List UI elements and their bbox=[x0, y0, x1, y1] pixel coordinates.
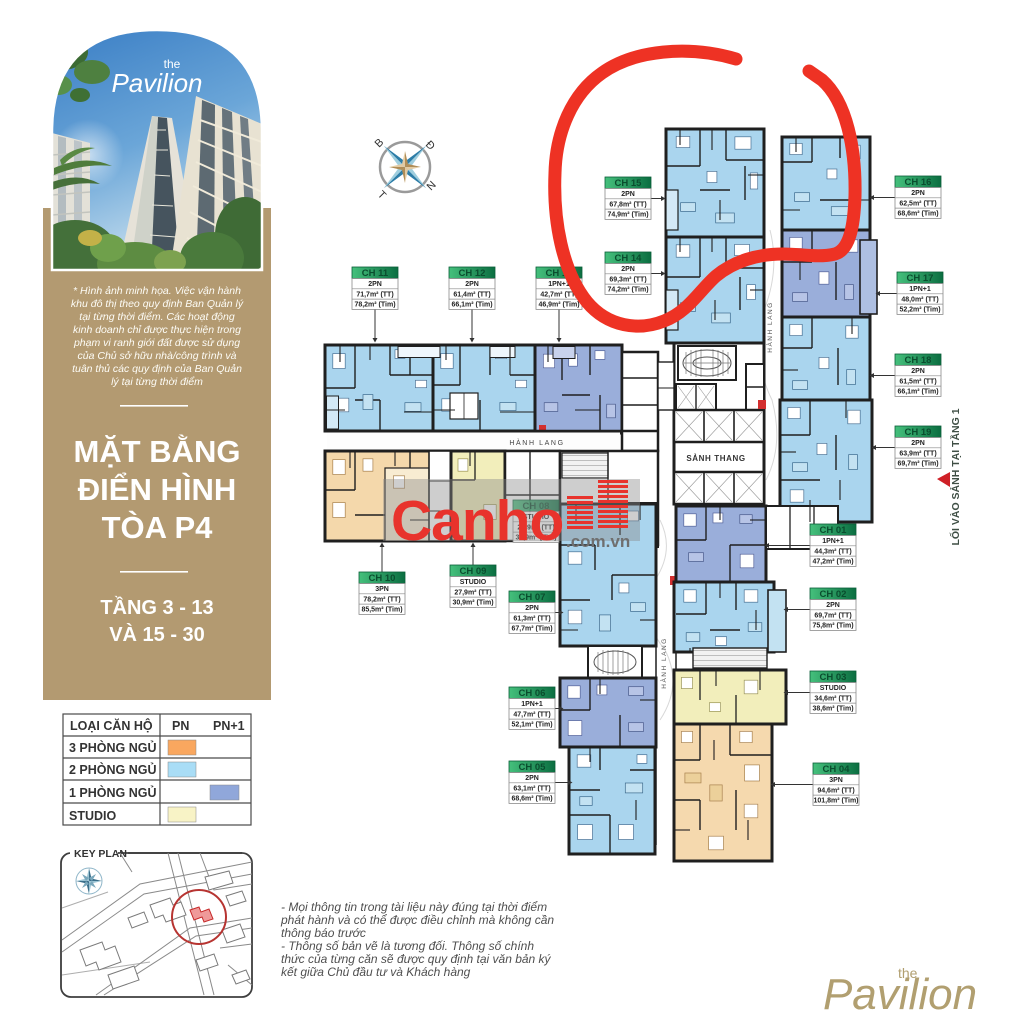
svg-text:phạm vi ranh giới đất được sử: phạm vi ranh giới đất được sử dụng bbox=[73, 337, 240, 349]
svg-text:2PN: 2PN bbox=[911, 440, 925, 447]
svg-text:2PN: 2PN bbox=[525, 605, 539, 612]
svg-text:CH 09: CH 09 bbox=[460, 566, 487, 577]
svg-text:LỐI VÀO SẢNH TẠI TẦNG 1: LỐI VÀO SẢNH TẠI TẦNG 1 bbox=[948, 408, 962, 545]
svg-text:67,8m² (TT): 67,8m² (TT) bbox=[609, 201, 646, 208]
svg-text:CH 16: CH 16 bbox=[905, 177, 932, 188]
svg-text:69,7m² (TT): 69,7m² (TT) bbox=[814, 612, 851, 619]
svg-text:71,7m² (TT): 71,7m² (TT) bbox=[356, 291, 393, 298]
svg-text:2PN: 2PN bbox=[621, 266, 635, 273]
svg-text:78,2m² (TT): 78,2m² (TT) bbox=[363, 596, 400, 603]
svg-text:HÀNH LANG: HÀNH LANG bbox=[659, 637, 668, 688]
svg-text:CH 06: CH 06 bbox=[519, 688, 546, 699]
svg-text:VÀ 15 - 30: VÀ 15 - 30 bbox=[109, 623, 205, 646]
svg-text:CH 12: CH 12 bbox=[459, 268, 486, 279]
svg-text:của Chủ sở hữu nhà/công trình: của Chủ sở hữu nhà/công trình và bbox=[78, 350, 237, 362]
svg-text:47,2m² (Tim): 47,2m² (Tim) bbox=[812, 559, 853, 566]
svg-text:CH 04: CH 04 bbox=[823, 764, 851, 775]
svg-text:74,9m² (Tim): 74,9m² (Tim) bbox=[607, 212, 648, 219]
svg-text:69,7m² (Tim): 69,7m² (Tim) bbox=[897, 461, 938, 468]
svg-text:30,9m² (Tim): 30,9m² (Tim) bbox=[452, 600, 493, 607]
svg-text:Pavilion: Pavilion bbox=[823, 970, 977, 1019]
svg-text:CH 05: CH 05 bbox=[519, 762, 547, 773]
svg-text:74,2m² (Tim): 74,2m² (Tim) bbox=[607, 287, 648, 294]
svg-text:61,4m² (TT): 61,4m² (TT) bbox=[453, 291, 490, 298]
svg-text:3PN: 3PN bbox=[829, 777, 843, 784]
svg-text:2PN: 2PN bbox=[465, 281, 479, 288]
svg-text:tuân thủ các quy định của Ban: tuân thủ các quy định của Ban Quản bbox=[72, 363, 242, 375]
svg-text:42,7m² (TT): 42,7m² (TT) bbox=[540, 291, 577, 298]
svg-text:2 PHÒNG NGỦ: 2 PHÒNG NGỦ bbox=[69, 762, 157, 777]
svg-text:CH 11: CH 11 bbox=[362, 268, 389, 279]
svg-text:MẶT BẰNG: MẶT BẰNG bbox=[73, 434, 240, 469]
svg-text:3PN: 3PN bbox=[375, 586, 389, 593]
svg-text:66,1m² (Tim): 66,1m² (Tim) bbox=[451, 302, 492, 309]
svg-text:2PN: 2PN bbox=[525, 775, 539, 782]
svg-text:63,1m² (TT): 63,1m² (TT) bbox=[513, 785, 550, 792]
svg-text:- Mọi thông tin trong tài liệu: - Mọi thông tin trong tài liệu này đúng … bbox=[281, 900, 547, 914]
svg-text:khu đô thị theo quy định Ban Q: khu đô thị theo quy định Ban Quản lý bbox=[71, 298, 244, 310]
svg-text:LOẠI CĂN HỘ: LOẠI CĂN HỘ bbox=[70, 718, 153, 733]
svg-text:phát hành và có thể được điều: phát hành và có thể được điều chỉnh mà k… bbox=[280, 913, 554, 927]
svg-text:75,8m² (Tim): 75,8m² (Tim) bbox=[812, 623, 853, 630]
svg-text:3 PHÒNG NGỦ: 3 PHÒNG NGỦ bbox=[69, 740, 157, 755]
svg-text:CH 18: CH 18 bbox=[905, 355, 932, 366]
svg-text:PN: PN bbox=[172, 719, 189, 733]
svg-text:47,7m² (TT): 47,7m² (TT) bbox=[513, 711, 550, 718]
svg-text:48,0m² (TT): 48,0m² (TT) bbox=[901, 296, 938, 303]
svg-text:CH 10: CH 10 bbox=[369, 573, 396, 584]
svg-text:kết giữa Chủ đầu tư và Khách h: kết giữa Chủ đầu tư và Khách hàng bbox=[281, 965, 471, 979]
svg-text:46,9m² (Tim): 46,9m² (Tim) bbox=[538, 302, 579, 309]
svg-text:ĐIỂN HÌNH: ĐIỂN HÌNH bbox=[78, 472, 236, 507]
svg-text:38,6m² (Tim): 38,6m² (Tim) bbox=[812, 706, 853, 713]
svg-text:thông báo trước: thông báo trước bbox=[281, 926, 366, 940]
svg-text:52,2m² (Tim): 52,2m² (Tim) bbox=[899, 307, 940, 314]
svg-text:52,1m² (Tim): 52,1m² (Tim) bbox=[511, 722, 552, 729]
svg-text:69,3m² (TT): 69,3m² (TT) bbox=[609, 276, 646, 283]
svg-text:thức của từng căn sẽ được quy: thức của từng căn sẽ được quy định tại v… bbox=[281, 952, 552, 966]
svg-text:* Hình ảnh minh họa. Việc vận: * Hình ảnh minh họa. Việc vận hành bbox=[73, 285, 241, 297]
svg-text:44,3m² (TT): 44,3m² (TT) bbox=[814, 548, 851, 555]
svg-text:HÀNH LANG: HÀNH LANG bbox=[765, 301, 774, 352]
svg-text:KEY PLAN: KEY PLAN bbox=[74, 848, 127, 860]
svg-text:.com.vn: .com.vn bbox=[566, 532, 630, 551]
svg-text:CH 03: CH 03 bbox=[820, 672, 847, 683]
svg-text:STUDIO: STUDIO bbox=[820, 685, 847, 692]
svg-text:kinh doanh chỉ được thực hiện: kinh doanh chỉ được thực hiện trong bbox=[73, 324, 241, 336]
svg-text:1PN+1: 1PN+1 bbox=[822, 538, 844, 545]
svg-text:- Thông số bản vẽ là tương đối: - Thông số bản vẽ là tương đối. Thông số… bbox=[281, 939, 534, 953]
svg-text:2PN: 2PN bbox=[368, 281, 382, 288]
svg-text:66,1m² (Tim): 66,1m² (Tim) bbox=[897, 389, 938, 396]
svg-text:1PN+1: 1PN+1 bbox=[521, 701, 543, 708]
svg-text:2PN: 2PN bbox=[826, 602, 840, 609]
svg-text:CH 14: CH 14 bbox=[615, 253, 643, 264]
svg-text:2PN: 2PN bbox=[621, 191, 635, 198]
svg-text:68,6m² (Tim): 68,6m² (Tim) bbox=[897, 211, 938, 218]
svg-text:94,6m² (TT): 94,6m² (TT) bbox=[817, 787, 854, 794]
svg-text:67,7m² (Tim): 67,7m² (Tim) bbox=[511, 626, 552, 633]
svg-text:Canho: Canho bbox=[391, 489, 563, 553]
svg-text:61,5m² (TT): 61,5m² (TT) bbox=[899, 378, 936, 385]
svg-text:CH 15: CH 15 bbox=[615, 178, 643, 189]
svg-text:CH 07: CH 07 bbox=[519, 592, 546, 603]
svg-text:63,9m² (TT): 63,9m² (TT) bbox=[899, 450, 936, 457]
svg-text:2PN: 2PN bbox=[911, 368, 925, 375]
svg-text:tại từng thời điểm. Các hoạt đ: tại từng thời điểm. Các hoạt động bbox=[79, 311, 235, 323]
svg-text:TÒA P4: TÒA P4 bbox=[102, 509, 214, 545]
svg-text:Pavilion: Pavilion bbox=[111, 68, 202, 98]
svg-text:CH 01: CH 01 bbox=[820, 525, 848, 536]
svg-text:78,2m² (Tim): 78,2m² (Tim) bbox=[354, 302, 395, 309]
svg-text:HÀNH LANG: HÀNH LANG bbox=[509, 438, 564, 447]
svg-text:1 PHÒNG NGỦ: 1 PHÒNG NGỦ bbox=[69, 785, 157, 800]
svg-text:1PN+1: 1PN+1 bbox=[909, 286, 931, 293]
svg-text:STUDIO: STUDIO bbox=[460, 579, 487, 586]
svg-text:2PN: 2PN bbox=[911, 190, 925, 197]
svg-text:68,6m² (Tim): 68,6m² (Tim) bbox=[511, 796, 552, 803]
svg-text:62,5m² (TT): 62,5m² (TT) bbox=[899, 200, 936, 207]
svg-text:TẦNG 3 - 13: TẦNG 3 - 13 bbox=[100, 596, 213, 619]
svg-text:STUDIO: STUDIO bbox=[69, 809, 117, 823]
svg-text:SẢNH THANG: SẢNH THANG bbox=[686, 454, 745, 463]
svg-text:101,8m² (Tim): 101,8m² (Tim) bbox=[814, 798, 859, 805]
svg-text:PN+1: PN+1 bbox=[213, 719, 245, 733]
svg-text:27,9m² (TT): 27,9m² (TT) bbox=[454, 589, 491, 596]
svg-text:1PN+1: 1PN+1 bbox=[548, 281, 570, 288]
svg-text:CH 17: CH 17 bbox=[907, 273, 934, 284]
svg-text:CH 02: CH 02 bbox=[820, 589, 847, 600]
svg-text:34,6m² (TT): 34,6m² (TT) bbox=[814, 695, 851, 702]
svg-text:lý tại từng thời điểm: lý tại từng thời điểm bbox=[111, 376, 203, 388]
svg-text:CH 19: CH 19 bbox=[905, 427, 932, 438]
svg-text:61,3m² (TT): 61,3m² (TT) bbox=[513, 615, 550, 622]
svg-text:85,5m² (Tim): 85,5m² (Tim) bbox=[361, 607, 402, 614]
